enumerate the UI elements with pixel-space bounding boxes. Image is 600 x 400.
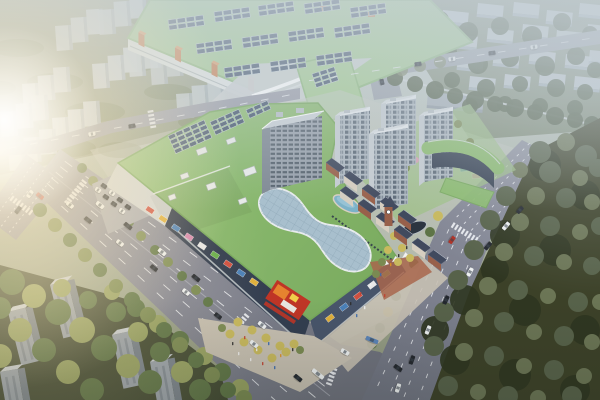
aerial-rendering: Aerial rendering of mixed-use commercial…	[0, 0, 600, 400]
rendering-canvas: Aerial rendering of mixed-use commercial…	[0, 0, 600, 400]
sun-flare-core	[0, 0, 600, 400]
